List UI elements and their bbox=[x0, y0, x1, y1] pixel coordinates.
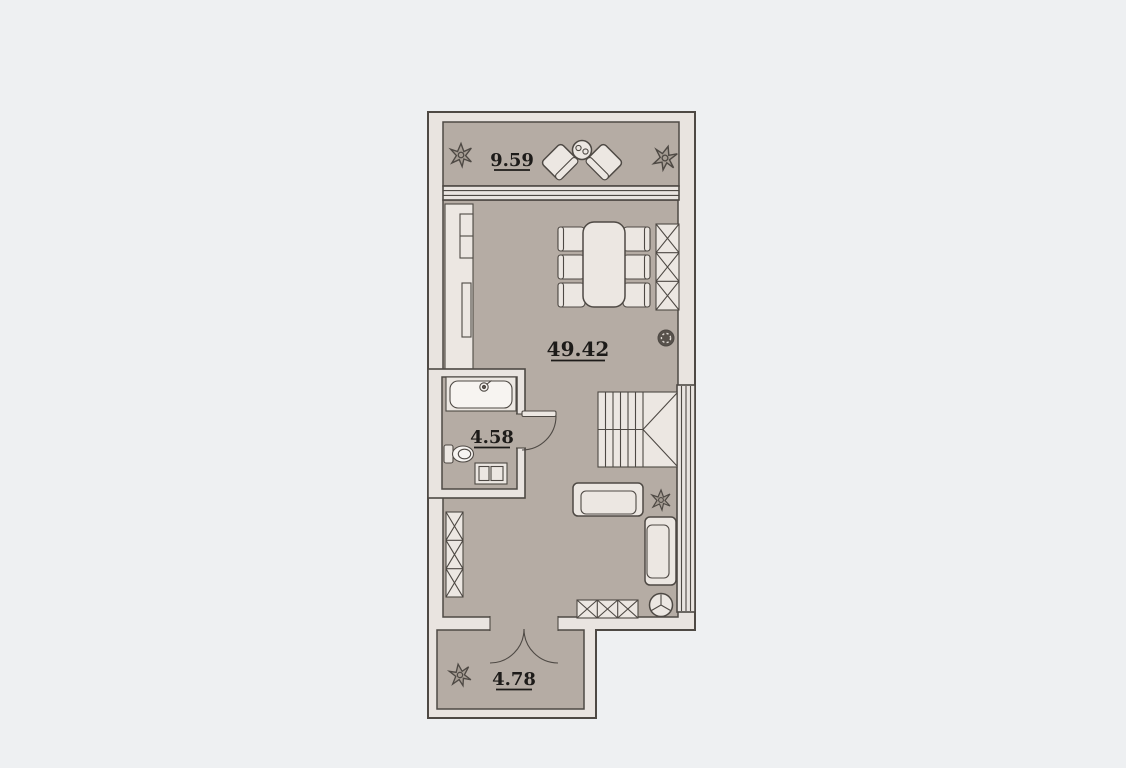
kitchen-shelf bbox=[462, 283, 471, 337]
toilet bbox=[444, 445, 474, 463]
washing-machine bbox=[475, 463, 507, 484]
dining-chair bbox=[558, 283, 585, 307]
area-label-living-room: 49.42 bbox=[547, 337, 610, 361]
staircase bbox=[598, 392, 677, 467]
window-frame bbox=[443, 186, 679, 200]
sofa-seat bbox=[581, 491, 636, 514]
sofa-vertical bbox=[645, 517, 676, 585]
bathtub bbox=[446, 377, 516, 411]
bathtub-faucet bbox=[482, 385, 485, 388]
sofa-seat bbox=[647, 525, 669, 578]
terrace-side-table bbox=[573, 141, 592, 160]
cabinet-left bbox=[446, 512, 463, 597]
table-top bbox=[573, 141, 592, 160]
entry-opening bbox=[490, 616, 558, 631]
sofa-horizontal bbox=[573, 483, 643, 516]
bathroom-door-leaf bbox=[522, 411, 556, 417]
dining-set bbox=[558, 222, 650, 307]
terrace-window bbox=[443, 186, 679, 200]
area-label-terrace: 9.59 bbox=[490, 150, 534, 171]
kitchen-unit bbox=[445, 204, 473, 369]
dining-chair bbox=[623, 255, 650, 279]
sideboard-bottom bbox=[577, 600, 638, 618]
area-label-entry: 4.78 bbox=[492, 669, 536, 690]
bathtub-basin bbox=[450, 381, 512, 408]
dining-table bbox=[583, 222, 625, 307]
fixture-body bbox=[658, 330, 674, 346]
area-label-bathroom: 4.58 bbox=[470, 427, 514, 448]
floor-plan-canvas: 9.59 49.42 4.58 4.78 bbox=[0, 0, 1126, 768]
dining-chair bbox=[623, 227, 650, 251]
bathroom-door-opening bbox=[516, 414, 526, 448]
dining-chair bbox=[623, 283, 650, 307]
wardrobe-right bbox=[656, 224, 679, 310]
dining-chair bbox=[558, 227, 585, 251]
side-window bbox=[677, 385, 695, 612]
floor-plan-drawing: 9.59 49.42 4.58 4.78 bbox=[0, 0, 1126, 768]
toilet-tank bbox=[444, 445, 453, 463]
round-table bbox=[650, 594, 673, 617]
wall-fixture bbox=[658, 330, 674, 346]
dining-chair bbox=[558, 255, 585, 279]
